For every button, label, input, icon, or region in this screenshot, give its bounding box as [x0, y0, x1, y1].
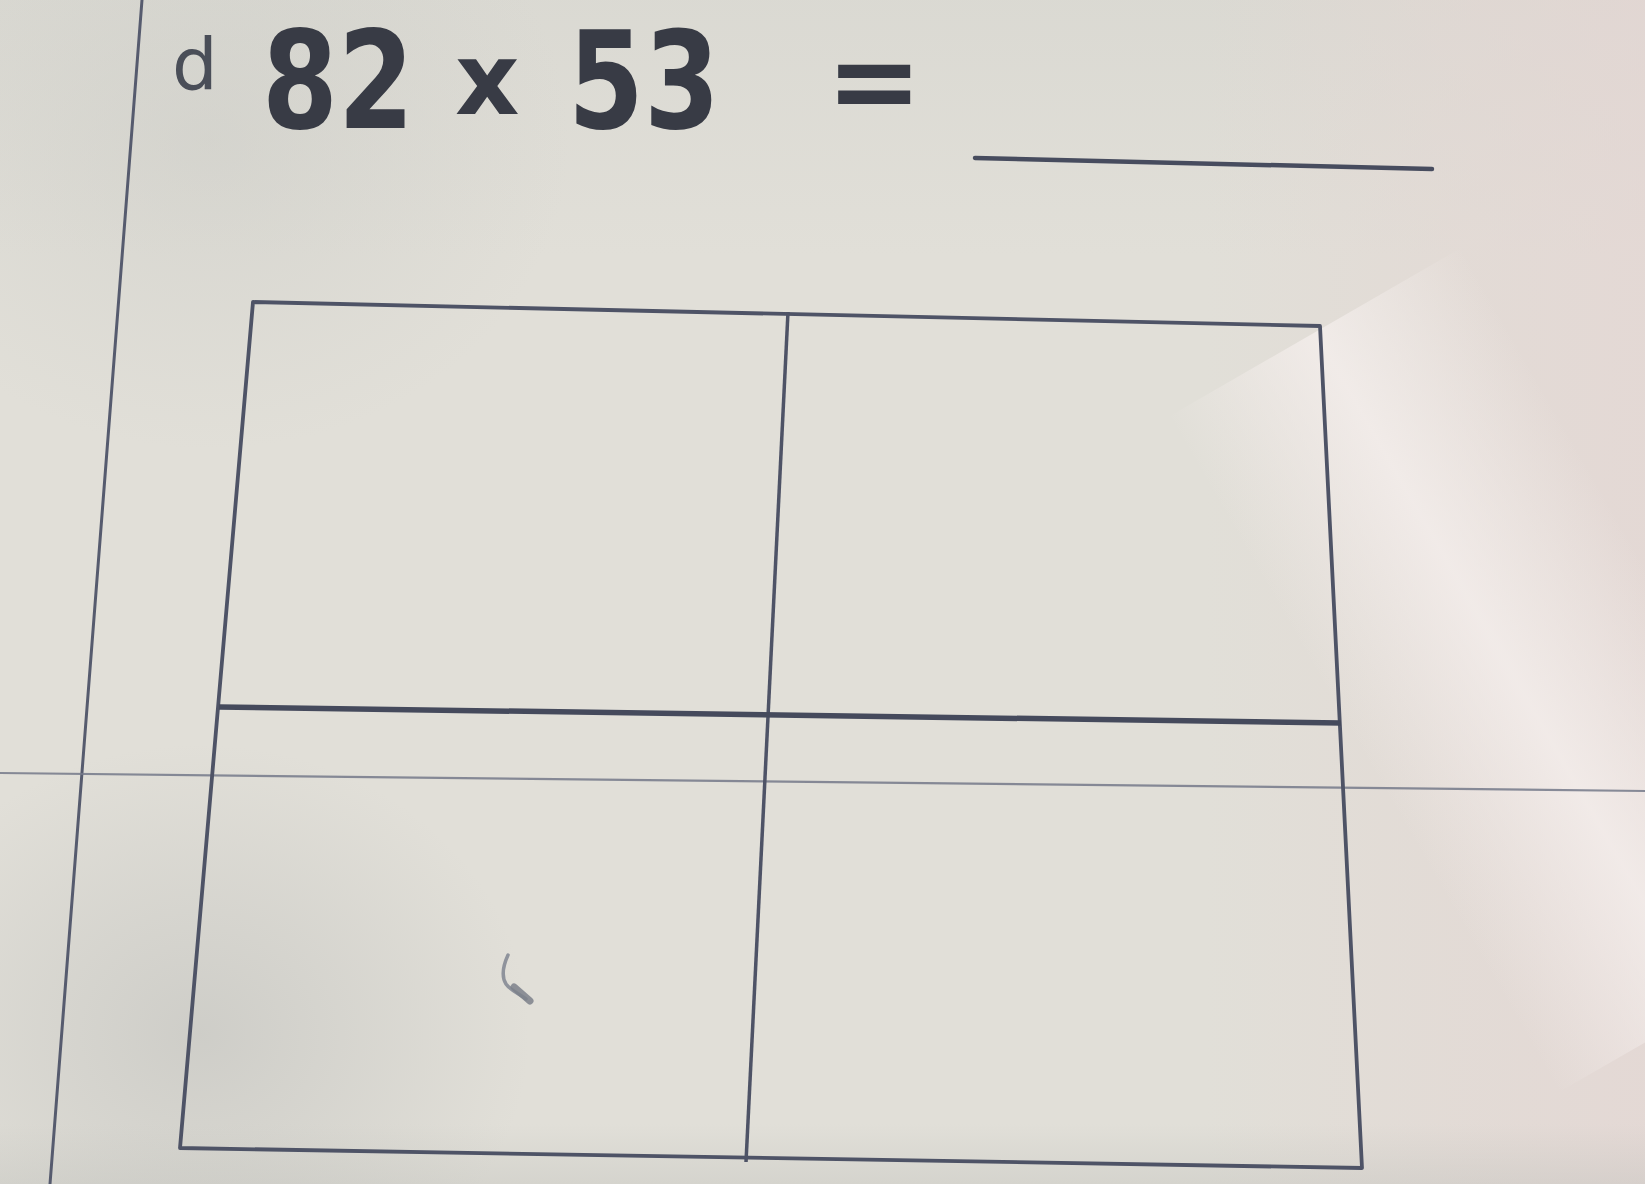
page-margin-line [50, 0, 142, 1184]
expression-factor1: 82 [262, 3, 414, 160]
expression-equals-sign: = [826, 14, 922, 148]
worksheet-markup: d 82 x 53 = [0, 0, 1645, 1184]
question-label: d [172, 22, 218, 106]
worksheet-photo: d 82 x 53 = [0, 0, 1645, 1184]
answer-blank-line [975, 158, 1432, 169]
area-model-grid [180, 302, 1362, 1168]
grid-cell-bottom-left [180, 707, 766, 1162]
grid-cell-top-right [766, 312, 1340, 723]
expression-operator: x [455, 21, 520, 138]
grid-cell-top-left [219, 302, 788, 707]
expression-factor2: 53 [568, 3, 720, 160]
grid-cell-bottom-right [746, 707, 1362, 1168]
